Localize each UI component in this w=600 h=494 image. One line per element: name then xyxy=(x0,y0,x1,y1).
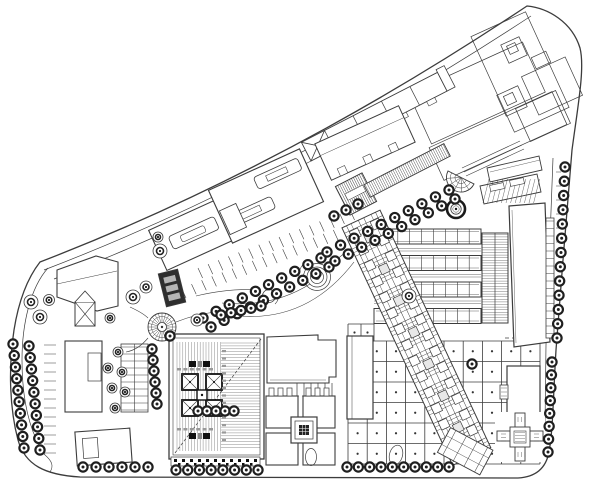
tree-icon xyxy=(34,434,43,443)
tree-icon xyxy=(424,208,433,217)
building-outline xyxy=(521,57,582,115)
tree-icon xyxy=(433,462,442,471)
tree-icon xyxy=(353,199,362,208)
tree-icon xyxy=(143,462,152,471)
tree-icon xyxy=(29,388,38,397)
plaza-path xyxy=(196,290,258,296)
tree-icon xyxy=(91,462,100,471)
large-tree-icon xyxy=(120,387,130,397)
tree-icon xyxy=(18,432,27,441)
tree-icon xyxy=(545,422,554,431)
site-plan xyxy=(0,0,600,494)
tree-icon xyxy=(285,282,294,291)
tree-icon xyxy=(554,305,563,314)
tree-icon xyxy=(165,331,174,340)
tree-icon xyxy=(272,289,281,298)
tree-icon xyxy=(311,269,320,278)
tree-icon xyxy=(558,219,567,228)
grass-ticks xyxy=(44,345,56,453)
tree-icon xyxy=(546,396,555,405)
tree-icon xyxy=(444,185,453,194)
large-tree-icon xyxy=(126,290,140,304)
tree-icon xyxy=(422,462,431,471)
tree-icon xyxy=(195,465,204,474)
tree-icon xyxy=(8,339,17,348)
tree-icon xyxy=(26,353,35,362)
building-outline xyxy=(471,12,569,132)
tree-icon xyxy=(556,262,565,271)
pavilion-cluster xyxy=(266,388,335,465)
tree-icon xyxy=(553,319,562,328)
tree-icon xyxy=(28,376,37,385)
tree-icon xyxy=(410,462,419,471)
tree-icon xyxy=(246,304,255,313)
tree-icon xyxy=(410,215,419,224)
tree-icon xyxy=(216,310,225,319)
tree-icon xyxy=(363,227,372,236)
tree-icon xyxy=(78,462,87,471)
tree-icon xyxy=(16,409,25,418)
tree-icon xyxy=(251,287,260,296)
tree-icon xyxy=(437,201,446,210)
tree-icon xyxy=(390,213,399,222)
tree-icon xyxy=(12,374,21,383)
tree-icon xyxy=(431,192,440,201)
large-tree-icon xyxy=(44,295,55,306)
tree-icon xyxy=(35,445,44,454)
tree-icon xyxy=(13,386,22,395)
tree-icon xyxy=(147,344,156,353)
tree-icon xyxy=(19,443,28,452)
tree-icon xyxy=(202,406,211,415)
tree-icon xyxy=(388,462,397,471)
road-edge xyxy=(45,455,52,472)
tree-icon xyxy=(555,276,564,285)
large-tree-icon xyxy=(110,403,120,413)
tree-icon xyxy=(218,465,227,474)
cross-plaza xyxy=(495,412,545,462)
tree-icon xyxy=(236,306,245,315)
tree-icon xyxy=(238,293,247,302)
tree-icon xyxy=(148,355,157,364)
tree-icon xyxy=(242,465,251,474)
large-tree-icon xyxy=(33,310,47,324)
tree-icon xyxy=(547,370,556,379)
tree-icon xyxy=(560,177,569,186)
large-tree-icon xyxy=(191,314,203,326)
tree-icon xyxy=(329,211,338,220)
tree-icon xyxy=(558,205,567,214)
tree-icon xyxy=(444,462,453,471)
tree-icon xyxy=(150,377,159,386)
tree-icon xyxy=(344,250,353,259)
tree-icon xyxy=(397,222,406,231)
shelter xyxy=(158,269,186,307)
tree-icon xyxy=(543,447,552,456)
hatched-hall xyxy=(169,334,264,466)
plaza-path xyxy=(126,338,148,352)
site-plan-canvas xyxy=(0,0,600,494)
slab-building xyxy=(509,203,550,347)
tree-icon xyxy=(384,229,393,238)
walkway-ladder xyxy=(546,218,554,338)
tree-icon xyxy=(152,399,161,408)
tree-icon xyxy=(298,276,307,285)
tree-icon xyxy=(149,366,158,375)
grid-building-tall xyxy=(347,336,373,419)
tree-icon xyxy=(256,301,265,310)
slab-b2 xyxy=(208,149,323,243)
tree-icon xyxy=(253,465,262,474)
tree-icon xyxy=(17,420,26,429)
stairs xyxy=(482,233,508,323)
center-building xyxy=(267,335,336,396)
large-tree-icon xyxy=(24,295,38,309)
tree-icon xyxy=(32,411,41,420)
large-tree-icon xyxy=(113,347,123,357)
tree-icon xyxy=(27,365,36,374)
large-tree-icon xyxy=(140,281,152,293)
tree-icon xyxy=(264,280,273,289)
tree-icon xyxy=(554,291,563,300)
tree-icon xyxy=(370,236,379,245)
tree-icon xyxy=(560,162,569,171)
tree-icon xyxy=(404,206,413,215)
tree-icon xyxy=(220,406,229,415)
tree-icon xyxy=(31,399,40,408)
layer-structures xyxy=(57,12,583,467)
tree-icon xyxy=(417,199,426,208)
tree-icon xyxy=(24,341,33,350)
tree-icon xyxy=(544,435,553,444)
tree-icon xyxy=(556,248,565,257)
tree-icon xyxy=(357,243,366,252)
large-tree-icon xyxy=(402,289,416,303)
tree-icon xyxy=(229,406,238,415)
tree-icon xyxy=(151,388,160,397)
tree-icon xyxy=(354,462,363,471)
tree-icon xyxy=(365,462,374,471)
tree-icon xyxy=(322,247,331,256)
tree-icon xyxy=(15,397,24,406)
tree-icon xyxy=(33,422,42,431)
tree-icon xyxy=(171,465,180,474)
tree-icon xyxy=(350,234,359,243)
tree-icon xyxy=(207,465,216,474)
tree-icon xyxy=(450,194,459,203)
tree-icon xyxy=(11,363,20,372)
tree-icon xyxy=(330,256,339,265)
tree-icon xyxy=(183,465,192,474)
tree-icon xyxy=(104,462,113,471)
tree-icon xyxy=(226,308,235,317)
large-tree-icon xyxy=(117,367,127,377)
building-outline xyxy=(516,90,571,141)
building-outline xyxy=(497,86,527,116)
tree-icon xyxy=(336,241,345,250)
tree-icon xyxy=(399,462,408,471)
tree-icon xyxy=(342,462,351,471)
tree-icon xyxy=(290,267,299,276)
tree-icon xyxy=(117,462,126,471)
large-tree-icon xyxy=(103,363,113,373)
tree-icon xyxy=(547,357,556,366)
large-tree-icon xyxy=(153,232,163,242)
tree-icon xyxy=(376,462,385,471)
tree-icon xyxy=(559,191,568,200)
large-tree-icon xyxy=(105,313,115,323)
tree-icon xyxy=(557,234,566,243)
tree-icon xyxy=(545,409,554,418)
tree-icon xyxy=(341,205,350,214)
tree-icon xyxy=(467,359,476,368)
tree-icon xyxy=(546,383,555,392)
tree-icon xyxy=(377,220,386,229)
tree-icon xyxy=(303,260,312,269)
grid-building-right xyxy=(507,366,540,415)
tree-icon xyxy=(277,273,286,282)
tree-icon xyxy=(211,406,220,415)
tree-icon xyxy=(206,322,215,331)
tree-icon xyxy=(230,465,239,474)
plaza-path xyxy=(130,307,148,318)
tree-icon xyxy=(10,351,19,360)
tree-icon xyxy=(552,333,561,342)
large-tree-icon xyxy=(107,383,117,393)
tree-icon xyxy=(193,406,202,415)
large-tree-icon xyxy=(153,244,167,258)
tree-icon xyxy=(130,462,139,471)
